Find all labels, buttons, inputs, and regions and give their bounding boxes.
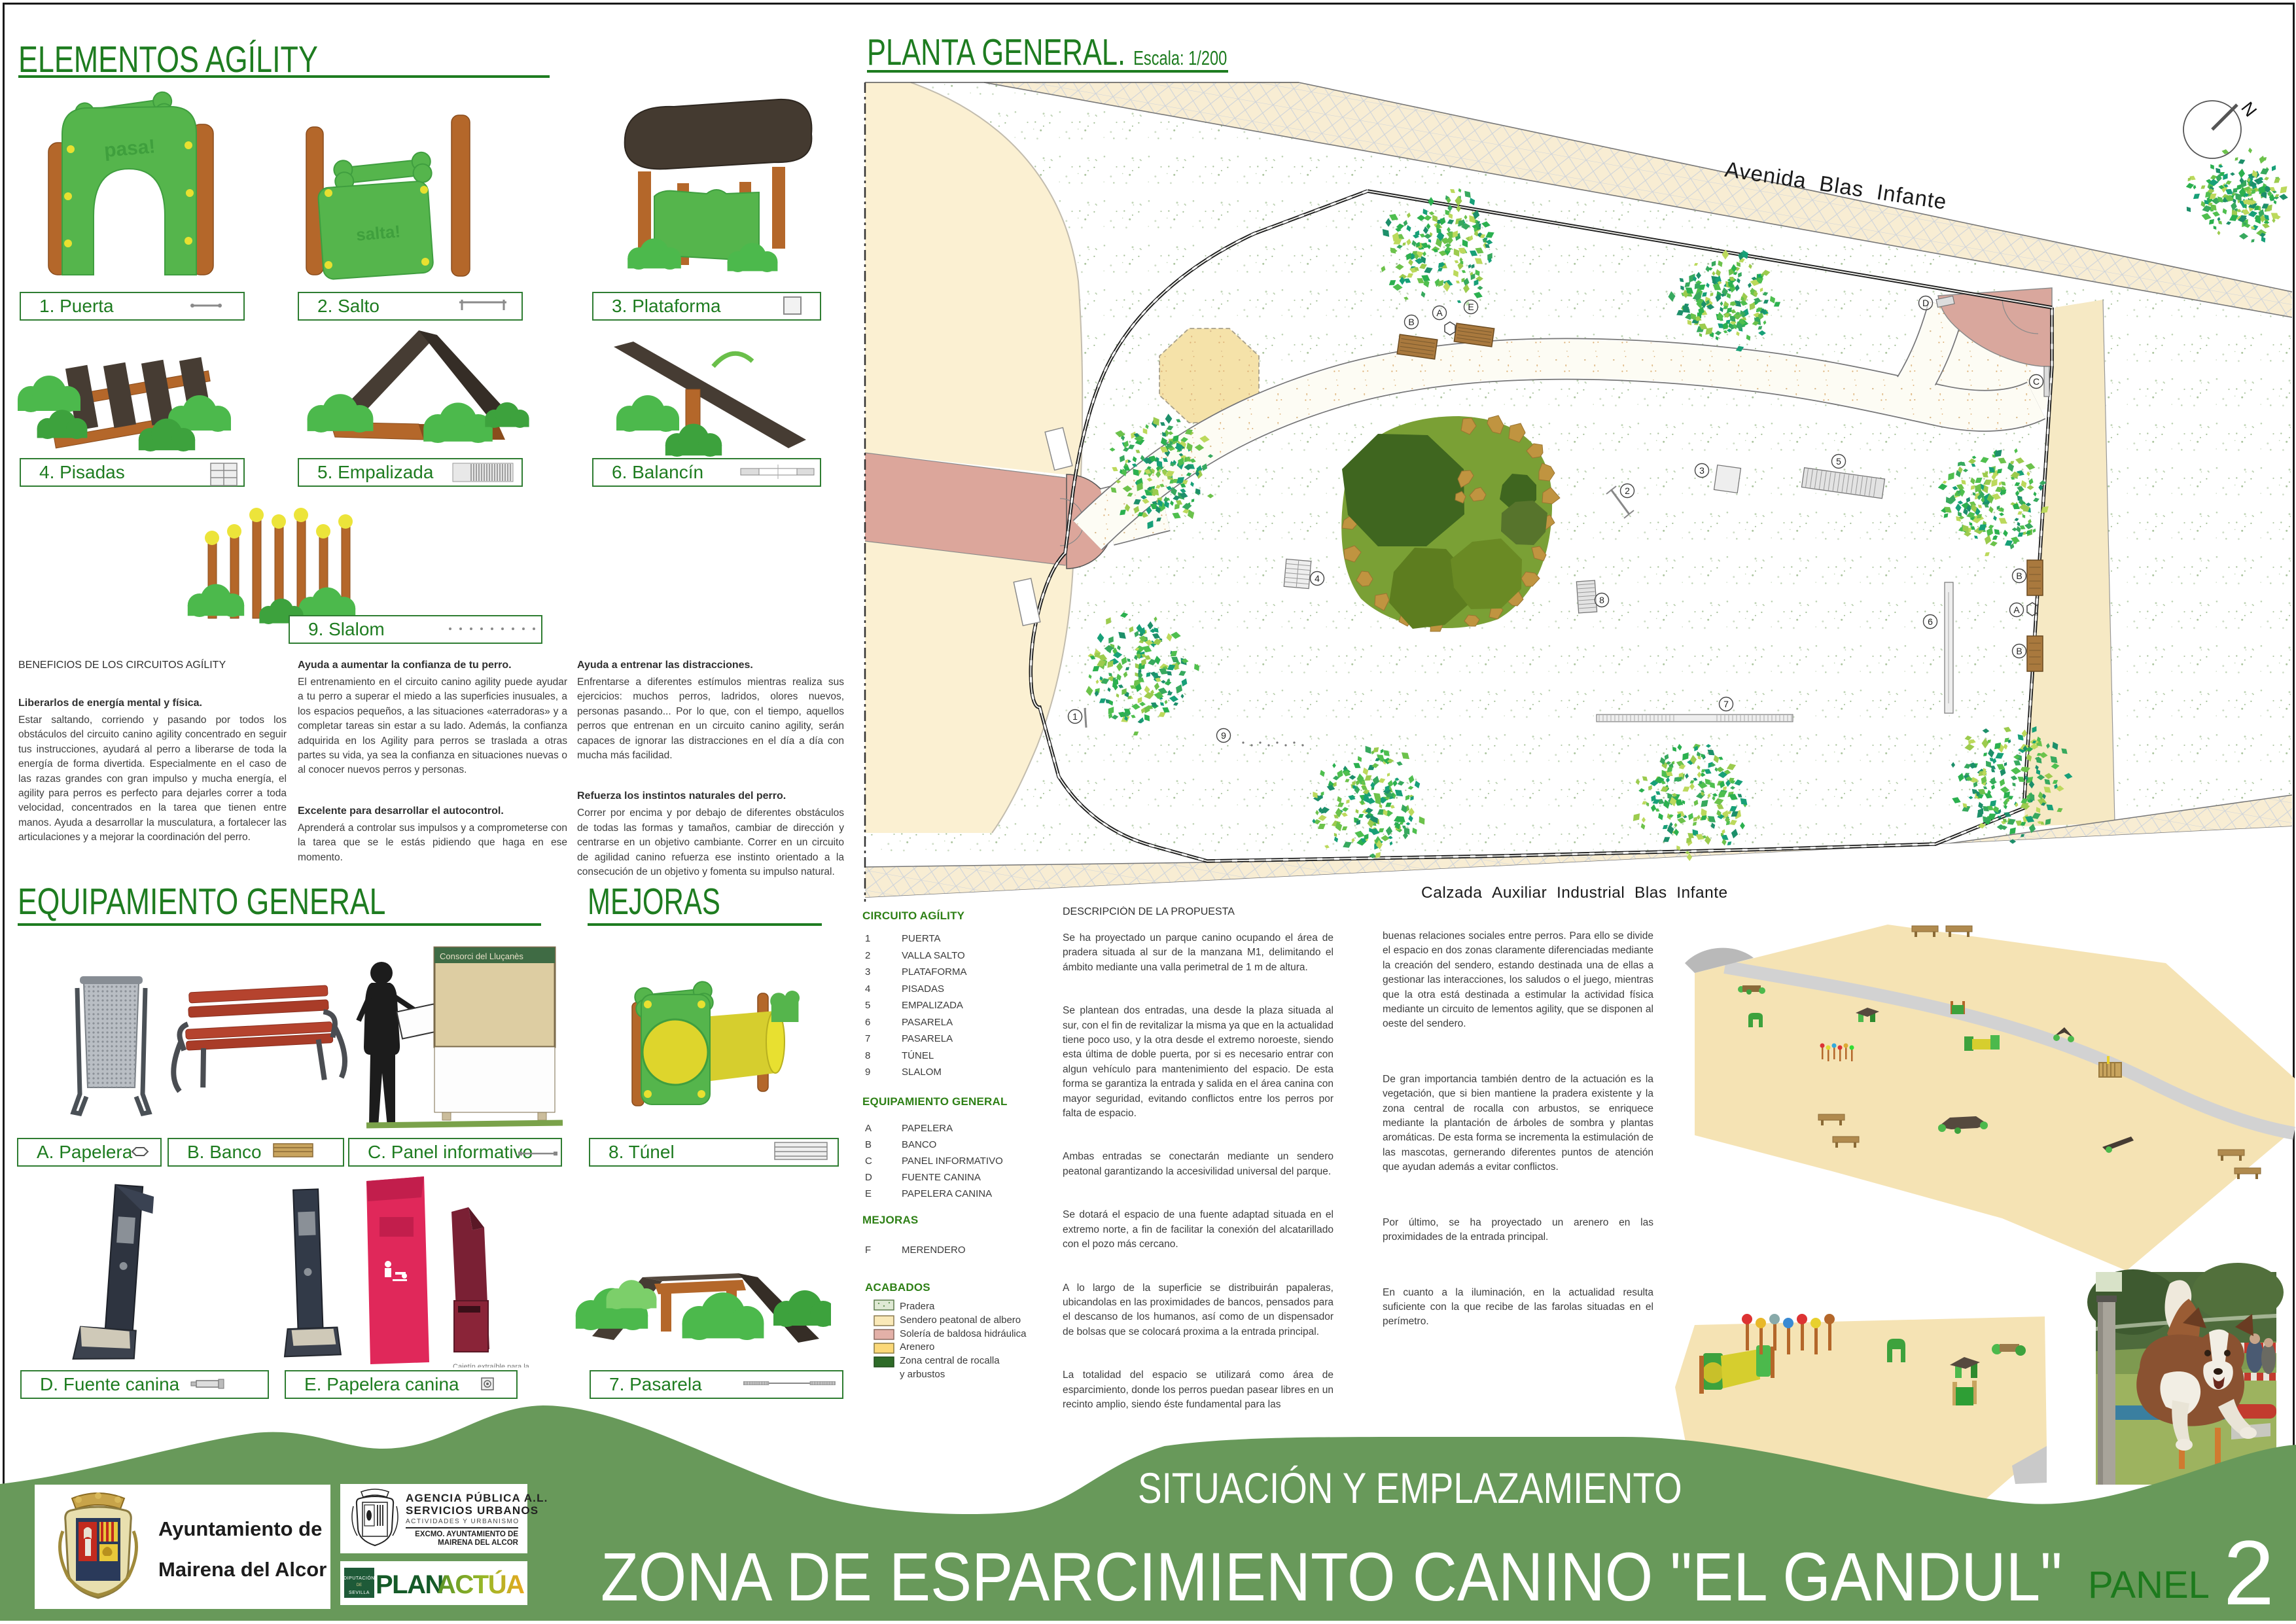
svg-text:salta!: salta! [355, 221, 401, 245]
svg-text:PLAN: PLAN [376, 1570, 443, 1599]
svg-text:5: 5 [1836, 456, 1841, 467]
svg-text:2: 2 [1625, 485, 1630, 496]
svg-text:8: 8 [1599, 595, 1604, 605]
svg-text:E: E [1468, 302, 1474, 312]
svg-text:SEVILLA: SEVILLA [349, 1591, 370, 1595]
svg-text:PANEL: PANEL [2088, 1564, 2210, 1606]
svg-text:3: 3 [1699, 465, 1704, 476]
svg-text:B: B [2016, 571, 2022, 581]
svg-text:Calzada Auxiliar Industrial: Calzada Auxiliar Industrial Blas Infante [1421, 884, 1728, 902]
svg-text:Cajetín extraíble para la: Cajetín extraíble para la [453, 1363, 530, 1368]
svg-text:1: 1 [1072, 711, 1078, 722]
svg-text:B: B [1408, 317, 1414, 327]
svg-text:7: 7 [1723, 699, 1729, 709]
svg-text:6: 6 [1928, 616, 1933, 627]
svg-text:B: B [2016, 646, 2022, 656]
svg-text:2: 2 [2223, 1521, 2274, 1624]
svg-text:DIPUTACIÓN: DIPUTACIÓN [344, 1575, 375, 1581]
svg-text:ZONA DE ESPARCIMIENTO CANINO ": ZONA DE ESPARCIMIENTO CANINO "EL GANDUL" [601, 1539, 2062, 1615]
svg-text:Consorci del Lluçanès: Consorci del Lluçanès [440, 951, 523, 961]
svg-text:D: D [1922, 298, 1929, 308]
svg-text:A: A [1436, 308, 1443, 318]
svg-text:ACTÚA: ACTÚA [437, 1569, 524, 1599]
svg-text:9: 9 [1221, 730, 1226, 741]
svg-text:A: A [2013, 605, 2020, 615]
svg-text:4: 4 [1315, 573, 1320, 584]
svg-text:DE: DE [357, 1583, 362, 1587]
svg-text:pasa!: pasa! [103, 135, 156, 162]
svg-text:SITUACIÓN Y EMPLAZAMIENTO: SITUACIÓN Y EMPLAZAMIENTO [1138, 1464, 1682, 1512]
svg-text:C: C [2033, 376, 2040, 387]
